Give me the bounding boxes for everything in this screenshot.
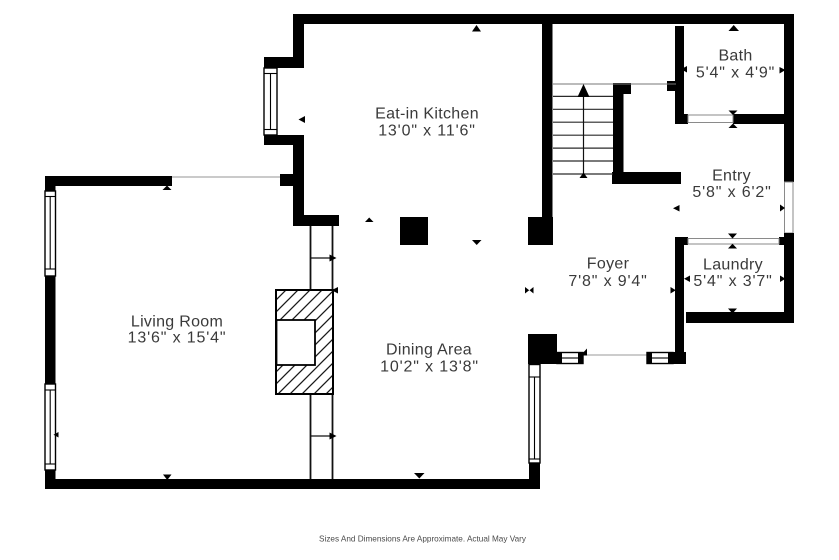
svg-text:7'8" x 9'4": 7'8" x 9'4": [568, 273, 647, 290]
svg-text:13'0" x 11'6": 13'0" x 11'6": [378, 123, 476, 140]
svg-text:Dining Area: Dining Area: [386, 342, 472, 359]
svg-text:13'6" x 15'4": 13'6" x 15'4": [128, 330, 227, 347]
svg-text:Foyer: Foyer: [587, 256, 630, 273]
svg-text:Living Room: Living Room: [131, 314, 223, 331]
svg-text:Entry: Entry: [712, 168, 751, 185]
svg-text:Eat-in Kitchen: Eat-in Kitchen: [375, 106, 479, 123]
svg-text:Laundry: Laundry: [703, 257, 763, 274]
svg-text:10'2" x 13'8": 10'2" x 13'8": [380, 359, 479, 376]
svg-text:5'4" x 4'9": 5'4" x 4'9": [696, 65, 775, 82]
svg-text:5'4" x 3'7": 5'4" x 3'7": [693, 273, 772, 290]
svg-text:Sizes And Dimensions Are Appro: Sizes And Dimensions Are Approximate. Ac…: [319, 535, 527, 544]
svg-text:Bath: Bath: [718, 48, 752, 65]
svg-text:5'8" x 6'2": 5'8" x 6'2": [692, 184, 771, 201]
